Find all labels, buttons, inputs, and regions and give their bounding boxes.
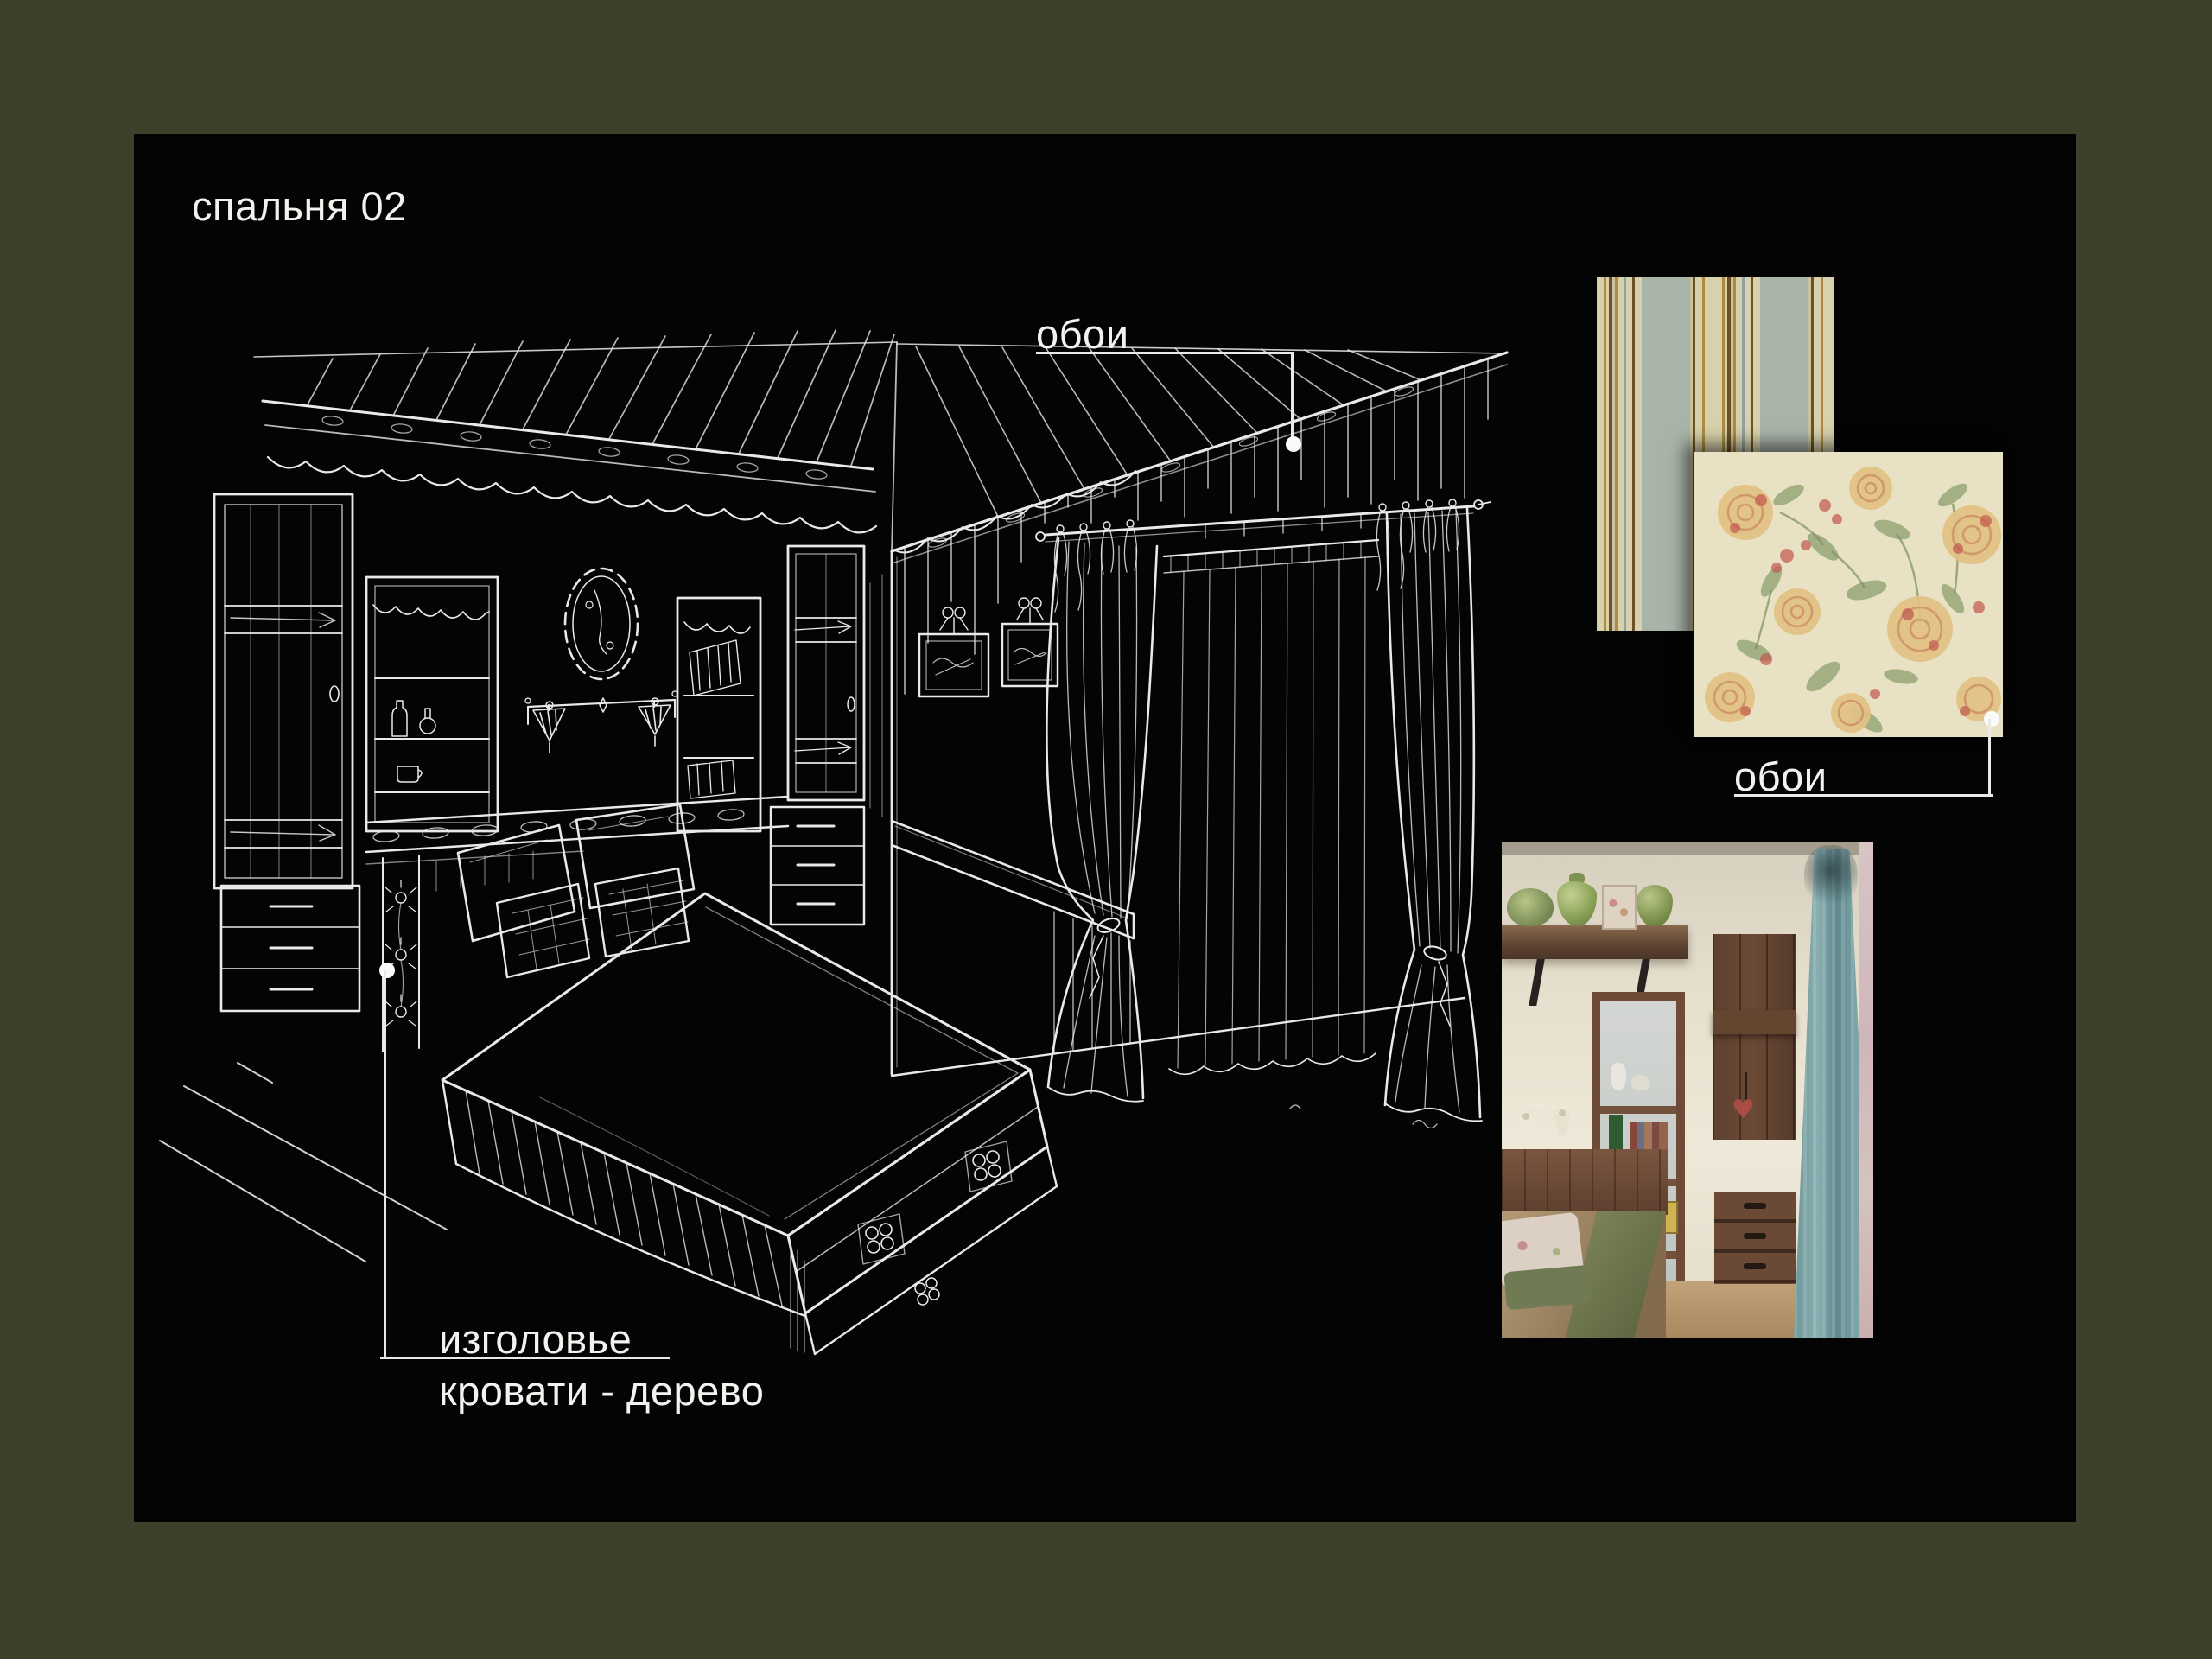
callout-wallpaper-sketch-underline	[1036, 352, 1294, 354]
photo-white-vase	[1611, 1063, 1626, 1090]
photo-door-batten	[1713, 1010, 1796, 1034]
floral-wallpaper-swatch	[1694, 452, 2003, 737]
callout-headboard-label-line1: изголовье	[439, 1315, 632, 1363]
photo-shelf-bracket	[1529, 959, 1545, 1006]
photo-curtain-gather	[1804, 845, 1858, 907]
callout-headboard-leader	[384, 970, 386, 1359]
callout-wallpaper-sketch-leader	[1291, 352, 1294, 440]
board-canvas: спальня 02	[134, 134, 2076, 1522]
photo-wall-shelf	[1502, 925, 1688, 959]
photo-wood-floor	[1654, 1281, 1801, 1338]
photo-wood-headboard	[1502, 1149, 1668, 1215]
sketch-curtains	[1036, 499, 1491, 1121]
photo-niche-shelf	[1600, 1106, 1676, 1114]
photo-green-vase	[1557, 881, 1597, 926]
presentation-board: спальня 02	[0, 0, 2212, 1659]
photo-heart-ornament: ♥	[1732, 1095, 1755, 1125]
callout-headboard-dot	[379, 963, 395, 978]
callout-wallpaper-swatch-dot	[1984, 711, 1999, 727]
photo-wall-lamp	[1503, 1084, 1586, 1153]
callout-wallpaper-swatch-label: обои	[1734, 753, 1827, 800]
floral-pattern	[1694, 452, 2003, 737]
photo-green-jug	[1637, 885, 1673, 926]
photo-green-pillow	[1503, 1265, 1592, 1311]
photo-floral-card	[1602, 885, 1637, 930]
callout-wallpaper-sketch-dot	[1286, 436, 1301, 452]
photo-drawer-unit	[1714, 1192, 1796, 1284]
photo-bird-figurine	[1631, 1075, 1650, 1090]
photo-wood-panel-door: ♥	[1713, 934, 1796, 1140]
photo-pink-floral-curtain	[1859, 842, 1873, 1338]
photo-drawer-handle	[1744, 1263, 1766, 1269]
bedroom-reference-photo: ♥	[1502, 842, 1873, 1338]
photo-green-ceramic	[1507, 888, 1554, 926]
callout-wallpaper-swatch-leader	[1988, 719, 1991, 797]
sketch-ceiling	[254, 330, 1507, 1074]
sketch-bed	[442, 804, 1057, 1354]
photo-drawer-handle	[1744, 1203, 1766, 1209]
photo-drawer-handle	[1744, 1233, 1766, 1239]
sketch-floor	[160, 1063, 447, 1262]
callout-wallpaper-sketch-label: обои	[1036, 310, 1128, 358]
callout-headboard-label-line2: кровати - дерево	[439, 1367, 764, 1414]
